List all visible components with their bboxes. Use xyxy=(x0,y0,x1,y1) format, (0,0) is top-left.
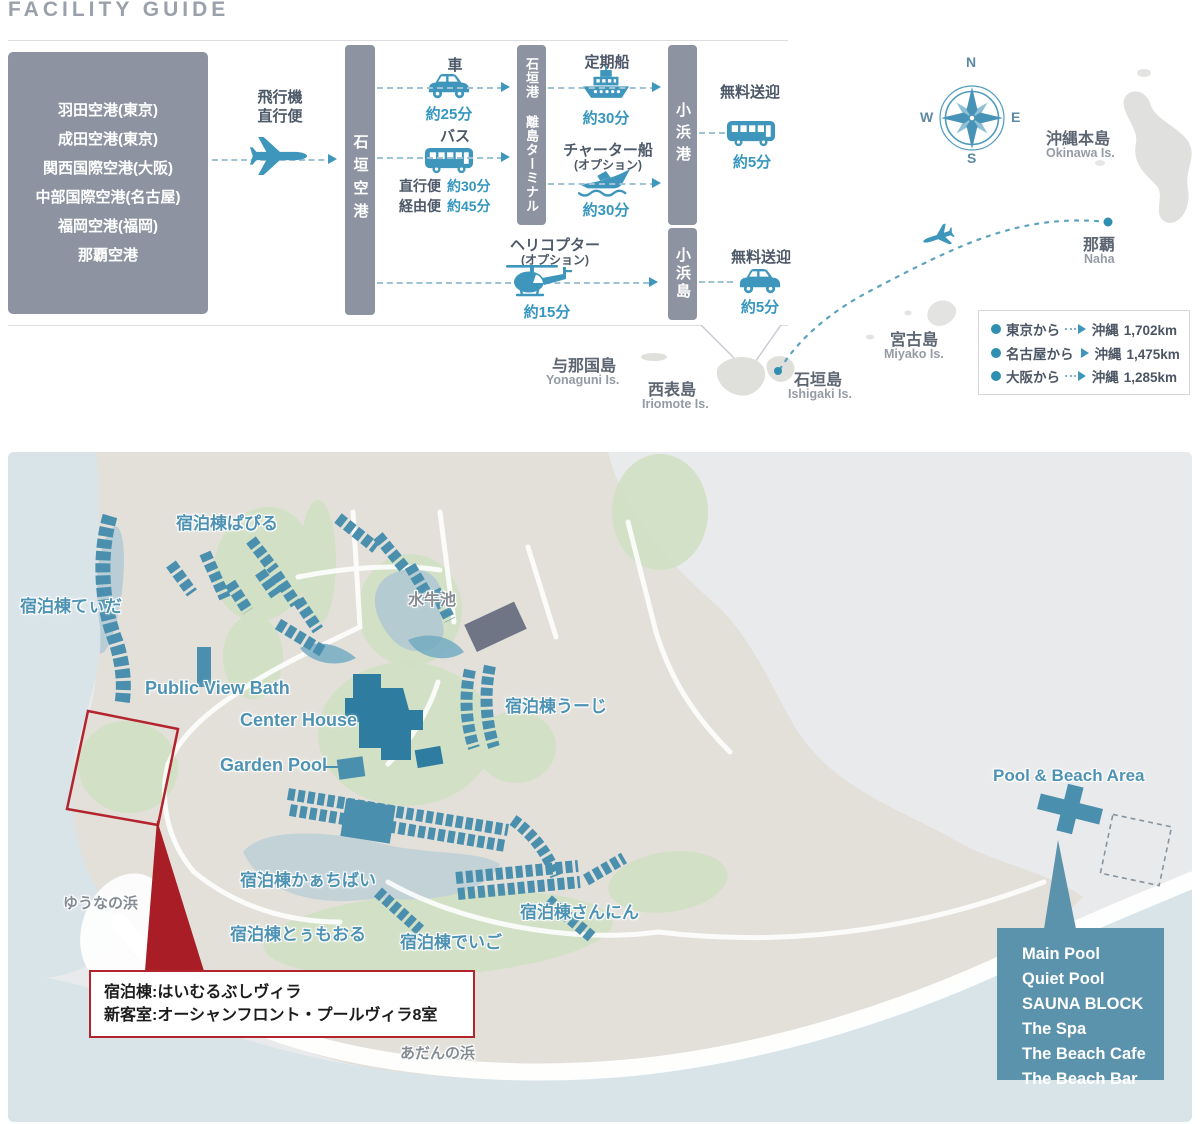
kaachibai-label: 宿泊棟かぁちばい xyxy=(240,866,376,891)
beach-facility-item: Quiet Pool xyxy=(1022,967,1164,992)
okinawa-label-en: Okinawa Is. xyxy=(1046,146,1115,160)
iriomote-island-shape xyxy=(717,357,765,396)
distance-row: 大阪から 沖縄1,285km xyxy=(991,364,1177,388)
car-icon xyxy=(426,71,472,100)
airport-item: 関西国際空港(大阪) xyxy=(8,154,208,183)
miyako-island-shape xyxy=(927,300,956,325)
yonaguni-label-en: Yonaguni Is. xyxy=(546,373,619,387)
bus-arrowhead xyxy=(501,152,510,162)
distance-row: 東京から 沖縄1,702km xyxy=(991,317,1177,341)
iriomote-label-en: Iriomote Is. xyxy=(642,397,709,411)
bus-via-time: 経由便約45分 xyxy=(399,196,491,216)
airport-item: 福岡空港(福岡) xyxy=(8,212,208,241)
sannin-label: 宿泊棟さんにん xyxy=(520,898,639,923)
compass-n-label: N xyxy=(966,54,976,70)
garden-pool-label: Garden Pool xyxy=(220,755,327,776)
uuji-label: 宿泊棟うーじ xyxy=(505,692,607,717)
car-connector xyxy=(377,87,503,89)
yuuna-beach-label: ゆうなの浜 xyxy=(63,892,138,913)
legend-arrow-icon xyxy=(1081,348,1089,358)
beach-facility-item: The Beach Bar xyxy=(1022,1067,1164,1092)
compass-rose-icon xyxy=(940,86,1004,150)
legend-dot-icon xyxy=(991,371,1001,381)
facility-guide-page: FACILITY GUIDE 羽田空港(東京) 成田空港(東京) 関西国際空港(… xyxy=(0,0,1200,1124)
legend-arrow-icon xyxy=(1078,371,1086,381)
okinawa-island-shape xyxy=(1124,91,1192,223)
center-house-label: Center House xyxy=(240,710,357,731)
beach-callout: Main Pool Quiet Pool SAUNA BLOCK The Spa… xyxy=(997,928,1164,1080)
flight-path-plane-icon xyxy=(920,222,956,252)
deigo-label: 宿泊棟でいご xyxy=(400,928,502,953)
legend-arrow-icon xyxy=(1078,324,1086,334)
pool-beach-area-label: Pool & Beach Area xyxy=(993,766,1144,786)
naha-marker xyxy=(1104,218,1113,227)
resort-map: 宿泊棟ぱぴる 宿泊棟てぃだ 水牛池 Public View Bath Cente… xyxy=(8,452,1192,1122)
kaachibai-central-building xyxy=(340,798,395,843)
legend-dot-icon xyxy=(991,324,1001,334)
airport-item: 羽田空港(東京) xyxy=(8,96,208,125)
ishigaki-label-en: Ishigaki Is. xyxy=(788,387,852,401)
flight-label: 飛行機 直行便 xyxy=(238,88,322,126)
bar-ishigaki-airport: 石垣空港 xyxy=(345,45,375,315)
airport-item: 成田空港(東京) xyxy=(8,125,208,154)
naha-label-en: Naha xyxy=(1084,252,1115,266)
yonaguni-island-shape xyxy=(641,353,667,361)
garden-pool-shape xyxy=(337,756,366,779)
ishigaki-marker xyxy=(774,367,782,375)
villa-callout-line1: 宿泊棟:はいむるぶしヴィラ xyxy=(104,981,460,1004)
legend-dashes xyxy=(1065,375,1076,377)
bus-connector xyxy=(377,157,503,159)
garden-pool-leader xyxy=(324,766,340,768)
airplane-icon xyxy=(250,133,308,179)
distance-legend: 東京から 沖縄1,702km 名古屋から 沖縄1,475km 大阪から 沖縄1,… xyxy=(978,310,1190,395)
tida-label: 宿泊棟てぃだ xyxy=(20,592,122,617)
divider-top xyxy=(8,40,788,41)
bus-icon xyxy=(424,145,474,174)
compass-e-label: E xyxy=(1011,109,1020,125)
legend-dot-icon xyxy=(991,348,1001,358)
public-view-bath-label: Public View Bath xyxy=(145,678,290,699)
page-title: FACILITY GUIDE xyxy=(8,0,229,22)
beach-facility-item: SAUNA BLOCK xyxy=(1022,992,1164,1017)
tuumooru-label: 宿泊棟とぅもおる xyxy=(230,920,366,945)
airport-list: 羽田空港(東京) 成田空港(東京) 関西国際空港(大阪) 中部国際空港(名古屋)… xyxy=(8,52,208,314)
villa-callout: 宿泊棟:はいむるぶしヴィラ 新客室:オーシャンフロント・プールヴィラ8室 xyxy=(89,970,475,1038)
airport-item: 中部国際空港(名古屋) xyxy=(8,183,208,212)
bus-route-label: バス xyxy=(432,125,478,146)
flight-arrowhead xyxy=(328,154,337,164)
distance-row: 名古屋から 沖縄1,475km xyxy=(991,341,1177,365)
adan-beach-label: あだんの浜 xyxy=(400,1042,475,1063)
bus-direct-time: 直行便約30分 xyxy=(399,176,491,196)
car-time: 約25分 xyxy=(418,103,480,124)
villa-callout-line2: 新客室:オーシャンフロント・プールヴィラ8室 xyxy=(104,1004,460,1027)
beach-facility-item: Main Pool xyxy=(1022,942,1164,967)
beach-facility-item: The Beach Cafe xyxy=(1022,1042,1164,1067)
compass-w-label: W xyxy=(920,109,933,125)
pabiru-label: 宿泊棟ぱぴる xyxy=(176,509,278,534)
miyako-label-en: Miyako Is. xyxy=(884,347,944,361)
beach-facility-item: The Spa xyxy=(1022,1017,1164,1042)
compass-s-label: S xyxy=(967,150,976,166)
legend-dashes xyxy=(1065,328,1076,330)
airport-item: 那覇空港 xyxy=(8,241,208,270)
car-arrowhead xyxy=(501,82,510,92)
suigyu-pond-label: 水牛池 xyxy=(408,586,456,610)
